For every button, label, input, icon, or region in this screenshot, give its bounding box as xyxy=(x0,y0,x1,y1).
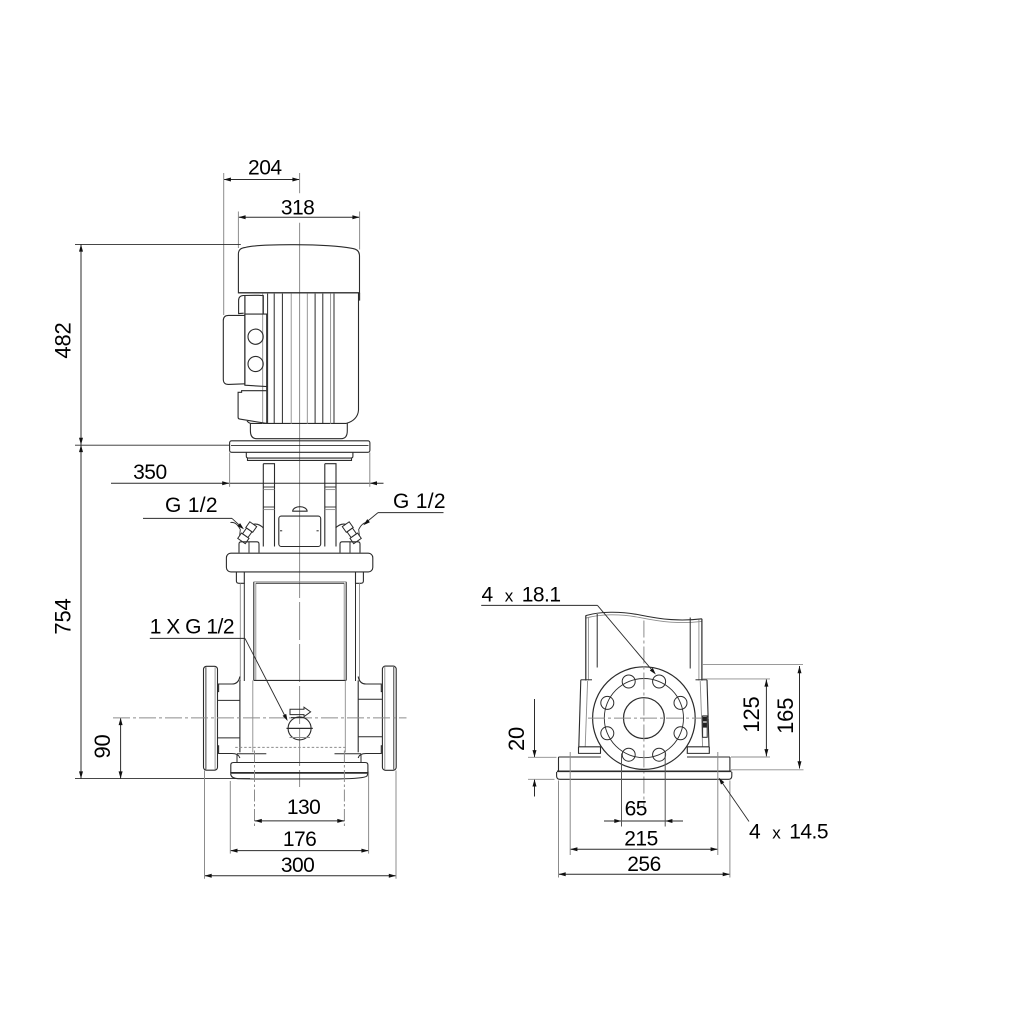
svg-text:165: 165 xyxy=(773,698,798,734)
svg-text:65: 65 xyxy=(625,798,647,821)
svg-text:176: 176 xyxy=(283,828,317,851)
svg-text:350: 350 xyxy=(133,461,167,484)
svg-text:G 1/2: G 1/2 xyxy=(393,490,446,513)
svg-text:20: 20 xyxy=(504,727,529,751)
svg-text:300: 300 xyxy=(281,854,315,877)
svg-text:125: 125 xyxy=(739,696,764,732)
svg-text:482: 482 xyxy=(51,322,76,358)
svg-text:G 1/2: G 1/2 xyxy=(165,494,218,517)
svg-text:204: 204 xyxy=(248,157,282,180)
svg-text:754: 754 xyxy=(51,598,76,634)
svg-text:130: 130 xyxy=(287,796,321,819)
svg-text:318: 318 xyxy=(281,197,315,220)
svg-text:1 X G 1/2: 1 X G 1/2 xyxy=(150,616,234,639)
svg-text:256: 256 xyxy=(627,853,661,876)
svg-text:90: 90 xyxy=(90,734,115,758)
svg-text:215: 215 xyxy=(624,828,658,851)
